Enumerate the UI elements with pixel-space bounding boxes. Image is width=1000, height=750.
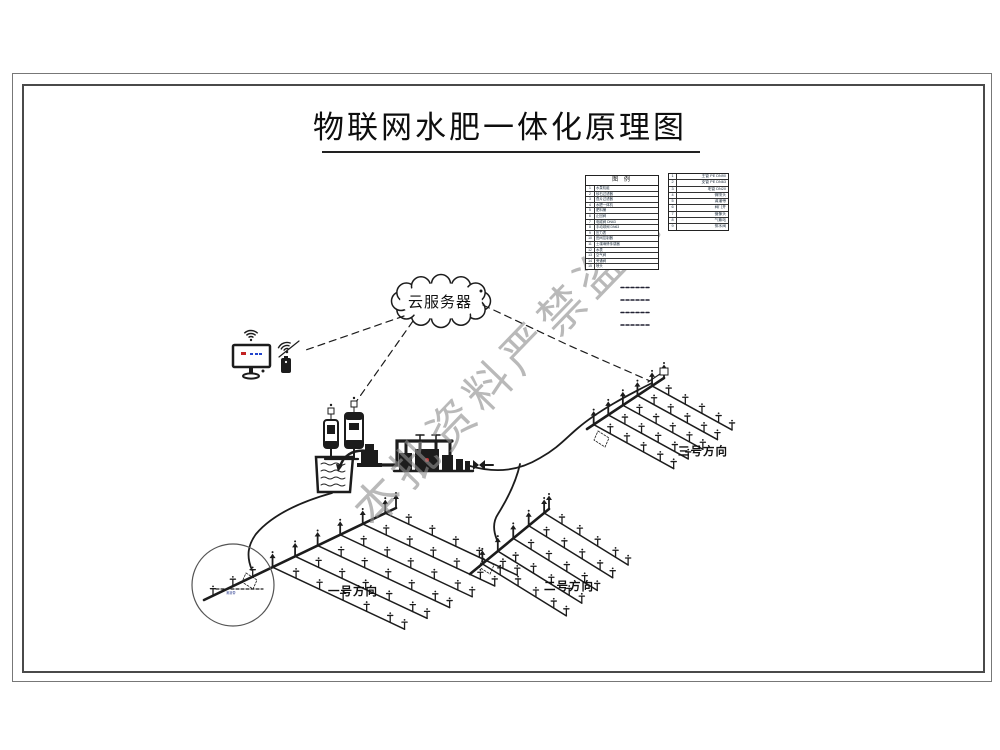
legend-row-name: 水泵机组 [595, 186, 658, 191]
sprinkler-icon [670, 404, 672, 406]
tank2-window [349, 423, 359, 430]
sprinkler-icon [581, 549, 583, 551]
wifi-icon [277, 341, 290, 349]
riser-icon [294, 540, 296, 542]
wifi-icon [244, 331, 257, 342]
sprinkler-icon [411, 580, 413, 582]
sprinkler-icon [457, 580, 459, 582]
sprinkler-icon [615, 547, 617, 549]
sprinkler-icon [672, 423, 674, 425]
sprinkler-icon [684, 394, 686, 396]
pump-cap [365, 444, 374, 450]
legend-row-number: 8 [669, 218, 677, 223]
field-controller-icon [660, 368, 668, 375]
legend-row-number: 8 [586, 225, 595, 230]
legend-row-number: 15 [586, 264, 595, 269]
riser-icon [651, 370, 653, 372]
monitor-screen-red [241, 352, 246, 355]
riser-icon [649, 372, 655, 377]
legend-row-name: 田间控制器 [595, 236, 658, 241]
sprinkler-icon [674, 441, 676, 443]
sprinkler-icon [499, 565, 501, 567]
sprinkler-icon [548, 550, 550, 552]
riser-icon [292, 543, 298, 548]
sprinkler-icon [471, 587, 473, 589]
sprinkler-icon [624, 414, 626, 416]
riser-icon [497, 535, 499, 537]
sprinkler-icon [363, 536, 365, 538]
sprinkler-icon [404, 619, 406, 621]
riser-icon [528, 510, 530, 512]
riser-icon [315, 532, 321, 537]
sprinkler-icon [703, 422, 705, 424]
riser-icon [479, 550, 485, 555]
sprinkler-icon [252, 566, 254, 568]
sprinkler-icon [479, 569, 481, 571]
phone-dot [285, 361, 287, 363]
sprinkler-icon [579, 525, 581, 527]
sprinkler-icon [366, 601, 368, 603]
riser-icon [339, 519, 341, 521]
sprinkler-icon [596, 580, 598, 582]
legend-row-name: 旁通阀 [595, 259, 658, 264]
legend-row-number: 3 [669, 187, 677, 192]
legend-row-number: 4 [669, 193, 677, 198]
field-lateral-pipe [594, 425, 674, 469]
sprinkler-icon [702, 439, 704, 441]
legend-row-number: 1 [669, 174, 677, 179]
sprinkler-icon [365, 579, 367, 581]
legend-row-name: 止回阀 [595, 214, 658, 219]
sprinkler-icon [364, 557, 366, 559]
legend-row-name: 手动球阀 DN63 [595, 225, 658, 230]
legend-row-name: 电磁阀 DN63 [595, 220, 658, 225]
legend-row-number: 7 [669, 212, 677, 217]
sprinkler-icon [566, 561, 568, 563]
sprinkler-icon [408, 514, 410, 516]
sensor-icon [328, 408, 334, 414]
legend-row-number: 1 [586, 186, 595, 191]
legend-row-name: 叠片过滤器 [595, 197, 658, 202]
sprinkler-icon [641, 423, 643, 425]
sprinkler-icon [426, 608, 428, 610]
sprinkler-icon [659, 451, 661, 453]
sprinkler-icon [565, 606, 567, 608]
riser-icon [593, 409, 595, 411]
sprinkler-icon [533, 563, 535, 565]
sprinkler-icon [731, 420, 733, 422]
riser-icon [337, 521, 343, 526]
riser-icon [510, 525, 516, 530]
legend-row-name: 肥料桶 [595, 208, 658, 213]
sprinkler-icon [387, 569, 389, 571]
sprinkler-icon [561, 514, 563, 516]
legend-row-number: 2 [669, 180, 677, 185]
legend-row-name: 微喷头 [677, 193, 728, 198]
sprinkler-icon [627, 555, 629, 557]
wifi-icon [246, 334, 255, 336]
monitor-screen-blue [250, 353, 253, 355]
sprinkler-icon [689, 432, 691, 434]
water-wave [321, 477, 345, 479]
legend-table-pipes: 1 主管 PE DN90 2 支管 PE DN63 3 毛管 DN20 4 微喷… [668, 173, 729, 231]
sprinkler-icon [319, 579, 321, 581]
legend-row-number: 5 [669, 199, 677, 204]
riser-icon [591, 411, 597, 416]
legend-row-name: 空气阀 [595, 253, 658, 258]
riser-icon [605, 401, 611, 406]
legend-row-name: 滴灌带 [677, 199, 728, 204]
sprinkler-icon [410, 558, 412, 560]
sprinkler-icon [717, 429, 719, 431]
wifi-icon [250, 339, 252, 341]
sprinkler-icon [412, 601, 414, 603]
monitor-screen-blue [259, 353, 262, 355]
legend-table-main: 图 例 1 水泵机组 2 砂石过滤器 3 叠片过滤器 4 [585, 175, 659, 270]
sprinkler-icon [456, 558, 458, 560]
title-underline [322, 151, 700, 153]
sensor-icon [351, 401, 357, 407]
sprinkler-icon [318, 557, 320, 559]
legend-row-number: 9 [586, 231, 595, 236]
sprinkler-icon [686, 413, 688, 415]
dashed-link-to-station [351, 321, 413, 409]
sprinkler-icon [701, 403, 703, 405]
sensor-dot [353, 397, 355, 399]
riser-icon [481, 548, 483, 550]
valve-block [465, 461, 470, 470]
sensor-dot [330, 404, 332, 406]
sprinkler-icon [553, 598, 555, 600]
sprinkler-icon [340, 546, 342, 548]
field-label-direction-3: 三号方向 [678, 443, 728, 459]
riser-icon [526, 512, 532, 517]
legend-row-name: 支管 PE DN63 [677, 180, 728, 185]
monitor-icon [233, 345, 270, 367]
tank2-base [345, 440, 363, 448]
sprinkler-icon [432, 547, 434, 549]
monitor-base [243, 373, 259, 378]
wifi-icon [277, 341, 293, 356]
pipe-to-field2 [494, 464, 520, 540]
sprinkler-icon [515, 552, 517, 554]
riser-icon [636, 380, 638, 382]
legend-row-number: 2 [586, 192, 595, 197]
sprinkler-icon [609, 424, 611, 426]
legend-row-number: 6 [586, 214, 595, 219]
legend-row-name: 喷头 [595, 264, 658, 269]
sprinkler-icon [433, 569, 435, 571]
monitor-screen-blue [255, 353, 258, 355]
sprinkler-icon [626, 433, 628, 435]
legend-row-number: 11 [586, 242, 595, 247]
sprinkler-icon [232, 576, 234, 578]
sprinkler-icon [546, 527, 548, 529]
detail-circle-note: 滴灌带 [226, 592, 236, 595]
riser-icon [620, 392, 626, 397]
sprinkler-icon [212, 585, 214, 587]
sprinkler-icon [434, 591, 436, 593]
legend-rows: 1 水泵机组 2 砂石过滤器 3 叠片过滤器 4 水肥一体机 [586, 186, 658, 269]
sprinkler-icon [494, 576, 496, 578]
sprinkler-icon [341, 568, 343, 570]
legend-row-number: 13 [586, 253, 595, 258]
riser-icon [634, 382, 640, 387]
legend-row-name: 气象站 [677, 218, 728, 223]
legend-row-number: 5 [586, 208, 595, 213]
riser-icon [543, 497, 545, 499]
legend-header: 图 例 [586, 176, 658, 186]
phone-notch [284, 356, 288, 359]
legend-row-name: 砂石过滤器 [595, 192, 658, 197]
sprinkler-icon [389, 612, 391, 614]
riser-icon [546, 496, 552, 501]
page-title: 物联网水肥一体化原理图 [0, 102, 1000, 147]
drawing-page: 物联网水肥一体化原理图 本批资料严禁盗用 云服务器 图 例 1 水泵机组 2 砂… [0, 0, 1000, 750]
phone-icon [281, 358, 291, 373]
sprinkler-icon [718, 412, 720, 414]
legend-row-name: 压力表 [595, 231, 658, 236]
sprinkler-icon [535, 587, 537, 589]
sprinkler-icon [449, 597, 451, 599]
sprinkler-icon [653, 395, 655, 397]
sprinkler-icon [563, 538, 565, 540]
tank1-base [324, 441, 338, 448]
legend-row-number: 6 [669, 205, 677, 210]
legend-row-number: 7 [586, 220, 595, 225]
legend-row-name: 水表 [595, 248, 658, 253]
sprinkler-icon [657, 432, 659, 434]
sprinkler-icon [643, 442, 645, 444]
sprinkler-icon [584, 572, 586, 574]
legend-row-name: 水肥一体机 [595, 203, 658, 208]
legend-row-name: 毛管 DN20 [677, 187, 728, 192]
sprinkler-icon [517, 576, 519, 578]
sprinkler-icon [409, 536, 411, 538]
riser-icon [622, 389, 624, 391]
zone-marker [594, 431, 609, 447]
dashed-link-to-terminal [303, 316, 404, 351]
field-label-direction-2: 二号方向 [544, 578, 594, 594]
field-label-direction-1: 一号方向 [328, 583, 378, 599]
riser-icon [512, 522, 514, 524]
monitor-dot [262, 370, 265, 373]
legend-row-name: 土壤墒情传感器 [595, 242, 658, 247]
field-lateral-pipe [608, 415, 688, 459]
legend-row: 15 喷头 [586, 264, 658, 269]
sprinkler-icon [673, 458, 675, 460]
sprinkler-icon [655, 413, 657, 415]
riser-icon [270, 554, 276, 559]
legend-row-name: 排水阀 [677, 224, 728, 229]
sprinkler-icon [612, 568, 614, 570]
sprinkler-icon [388, 590, 390, 592]
cloud-server-label: 云服务器 [400, 291, 480, 312]
legend-row-name: 阀门井 [677, 205, 728, 210]
field-lateral-pipe [652, 386, 732, 430]
sprinkler-icon [431, 525, 433, 527]
sprinkler-icon [478, 547, 480, 549]
sprinkler-icon [597, 536, 599, 538]
riser-icon [317, 530, 319, 532]
sprinkler-icon [550, 574, 552, 576]
riser-icon [548, 493, 550, 495]
sprinkler-icon [639, 404, 641, 406]
legend-row-number: 4 [586, 203, 595, 208]
legend-rows-2: 1 主管 PE DN90 2 支管 PE DN63 3 毛管 DN20 4 微喷… [669, 174, 728, 230]
sprinkler-icon [502, 558, 504, 560]
legend-row-name: 摄像头 [677, 212, 728, 217]
sprinkler-icon [295, 568, 297, 570]
legend-row-number: 14 [586, 259, 595, 264]
sprinkler-icon [668, 385, 670, 387]
tank1-window [327, 425, 335, 434]
sprinkler-icon [530, 539, 532, 541]
field-lateral-pipe [637, 396, 717, 440]
riser-icon [663, 362, 665, 364]
wifi-icon [249, 337, 254, 338]
riser-icon [607, 399, 609, 401]
sprinkler-icon [386, 547, 388, 549]
sprinkler-icon [516, 565, 518, 567]
water-wave [321, 470, 345, 472]
riser-icon [541, 500, 547, 505]
legend-row-number: 3 [586, 197, 595, 202]
legend-row-number: 10 [586, 236, 595, 241]
legend-row-number: 12 [586, 248, 595, 253]
sprinkler-icon [455, 536, 457, 538]
tank2-top [345, 413, 363, 420]
legend-row-name: 主管 PE DN90 [677, 174, 728, 179]
sprinkler-icon [599, 560, 601, 562]
legend-row: 9 排水阀 [669, 224, 728, 229]
riser-icon [272, 551, 274, 553]
legend-row-number: 9 [669, 224, 677, 229]
